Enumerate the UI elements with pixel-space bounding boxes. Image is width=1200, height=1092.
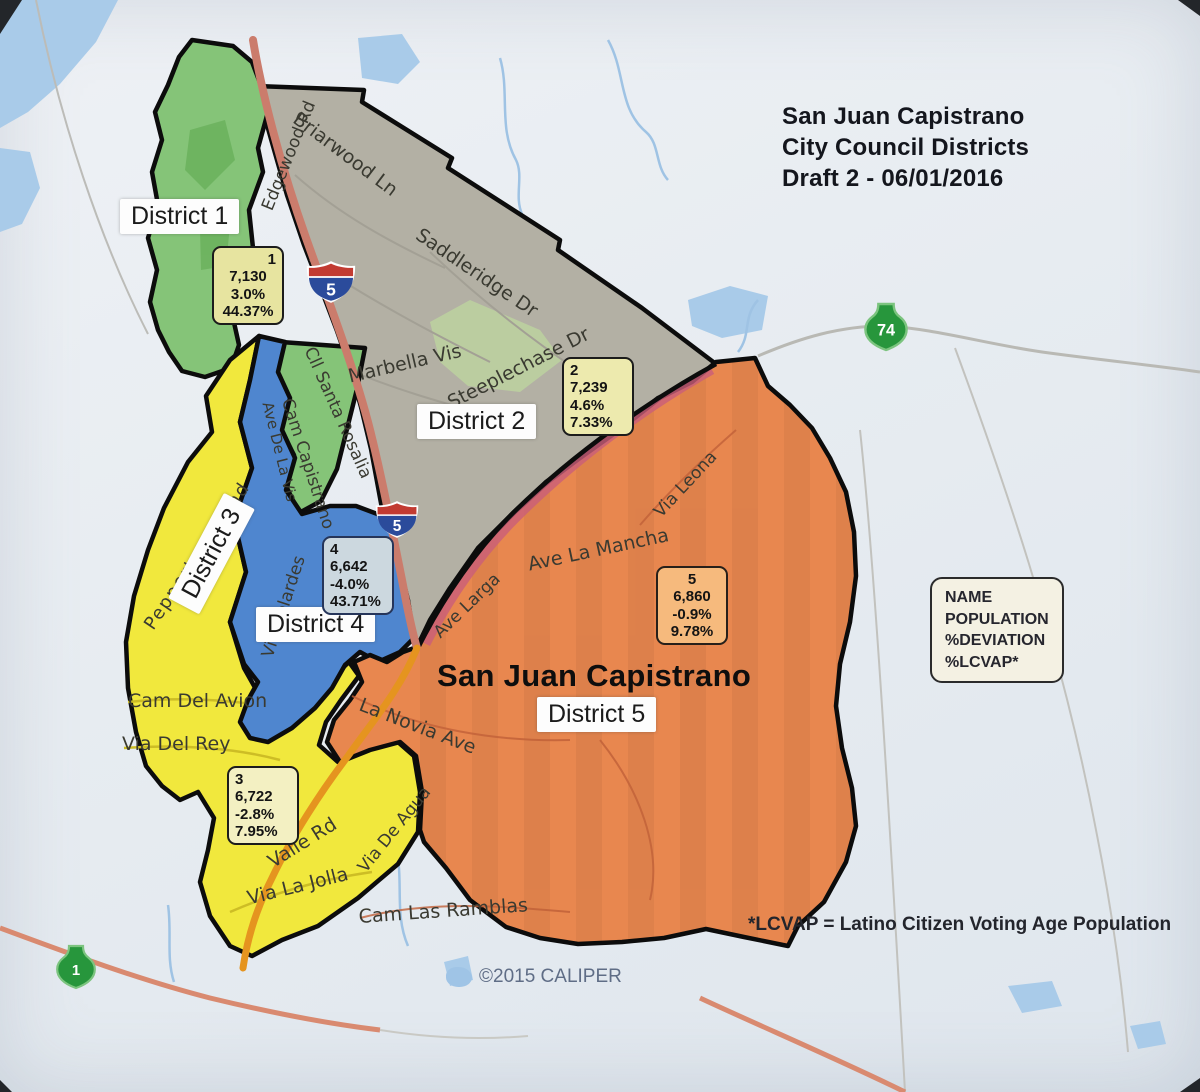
district-1-stats: 1 7,130 3.0% 44.37% [212,246,284,325]
district-deviation: -2.8% [235,806,291,823]
route-74-number: 74 [877,322,895,340]
district-2-label: District 2 [417,404,536,439]
district-number: 1 [220,251,276,268]
district-lcvap: 44.37% [220,303,276,320]
district-population: 6,722 [235,788,291,805]
legend-key-box: NAME POPULATION %DEVIATION %LCVAP* [930,577,1064,683]
interstate-5-number: 5 [326,279,336,299]
district-lcvap: 9.78% [664,623,720,640]
map-title-line2: City Council Districts [782,132,1029,163]
legend-deviation-line: %DEVIATION [945,630,1049,652]
route-1-shield: 1 [55,944,97,990]
district-lcvap: 43.71% [330,593,386,610]
map-title-line1: San Juan Capistrano [782,101,1029,132]
map-title: San Juan Capistrano City Council Distric… [782,101,1029,195]
map-page: Briarwood Ln Edgewood Rd Saddleridge Dr … [0,0,1200,1092]
district-deviation: -4.0% [330,576,386,593]
district-population: 6,642 [330,558,386,575]
district-3-stats: 3 6,722 -2.8% 7.95% [227,766,299,845]
district-4-stats: 4 6,642 -4.0% 43.71% [322,536,394,615]
legend-name-line: NAME [945,587,1049,609]
district-lcvap: 7.33% [570,414,626,431]
legend-population-line: POPULATION [945,609,1049,631]
district-5-stats: 5 6,860 -0.9% 9.78% [656,566,728,645]
district-1-label: District 1 [120,199,239,234]
legend-lcvap-line: %LCVAP* [945,652,1049,674]
route-74-shield: 74 [863,302,909,352]
interstate-5-shield: 5 [306,260,356,304]
district-5-label: District 5 [537,697,656,732]
road-label-via-del-rey: Via Del Rey [122,733,230,755]
district-2-stats: 2 7,239 4.6% 7.33% [562,357,634,436]
district-number: 2 [570,362,626,379]
district-population: 7,130 [220,268,276,285]
district-deviation: 3.0% [220,286,276,303]
interstate-5-number: 5 [393,518,402,535]
map-title-line3: Draft 2 - 06/01/2016 [782,163,1029,194]
interstate-5-shield-south: 5 [375,500,419,539]
route-1-number: 1 [72,963,80,979]
road-label-cam-del-avion: Cam Del Avion [128,690,267,712]
city-name-label: San Juan Capistrano [437,658,751,694]
water-blob-icon [446,967,472,987]
district-lcvap: 7.95% [235,823,291,840]
copyright-line: ©2015 CALIPER [446,966,622,988]
lcvap-footnote: *LCVAP = Latino Citizen Voting Age Popul… [748,914,1171,936]
district-population: 7,239 [570,379,626,396]
district-number: 4 [330,541,386,558]
district-population: 6,860 [664,588,720,605]
district-number: 3 [235,771,291,788]
district-deviation: -0.9% [664,606,720,623]
district-deviation: 4.6% [570,397,626,414]
district-number: 5 [664,571,720,588]
copyright-text: ©2015 CALIPER [479,966,622,988]
